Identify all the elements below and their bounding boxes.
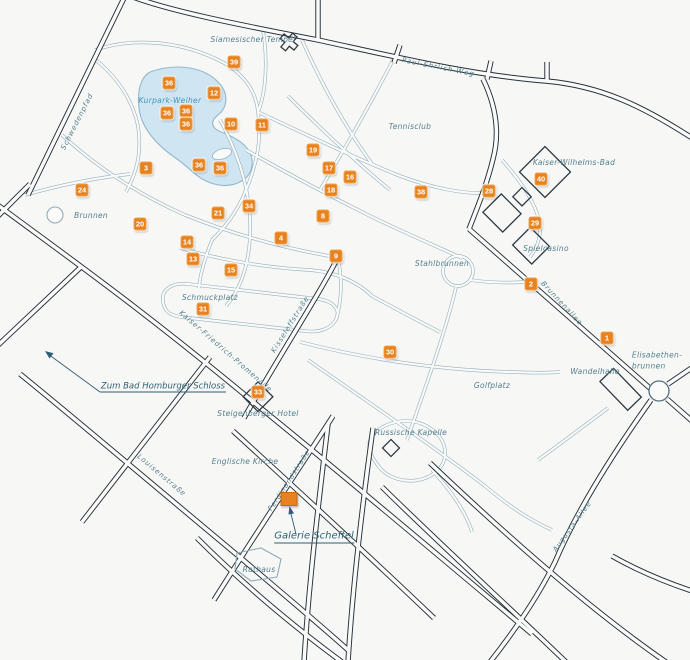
poi-marker-33[interactable]: 33	[252, 386, 265, 399]
poi-marker-24[interactable]: 24	[76, 184, 89, 197]
russische-kapelle-building	[383, 440, 400, 457]
poi-marker-13[interactable]: 13	[187, 253, 200, 266]
annotations	[45, 351, 296, 534]
poi-marker-36[interactable]: 36	[193, 159, 206, 172]
schloss-direction-arrow	[48, 354, 100, 392]
poi-marker-38[interactable]: 38	[415, 186, 428, 199]
map-canvas	[0, 0, 690, 660]
brunnen-fountain-icon	[47, 207, 63, 223]
poi-marker-36[interactable]: 36	[214, 162, 227, 175]
poi-marker-17[interactable]: 17	[323, 162, 336, 175]
poi-marker-16[interactable]: 16	[344, 171, 357, 184]
galerie-arrowhead-icon	[289, 506, 295, 515]
poi-marker-30[interactable]: 30	[384, 346, 397, 359]
poi-marker-15[interactable]: 15	[225, 264, 238, 277]
poi-marker-20[interactable]: 20	[134, 218, 147, 231]
poi-marker-4[interactable]: 4	[275, 232, 288, 245]
poi-marker-36[interactable]: 36	[180, 105, 193, 118]
elisabethenbrunnen-fountain-icon	[649, 381, 669, 401]
poi-marker-2[interactable]: 2	[525, 278, 538, 291]
spielcasino-building	[513, 227, 550, 264]
poi-marker-39[interactable]: 39	[228, 56, 241, 69]
poi-marker-1[interactable]: 1	[601, 332, 614, 345]
poi-marker-10[interactable]: 10	[225, 118, 238, 131]
poi-marker-9[interactable]: 9	[330, 250, 343, 263]
poi-marker-19[interactable]: 19	[307, 144, 320, 157]
poi-marker-3[interactable]: 3	[140, 162, 153, 175]
poi-marker-29[interactable]: 29	[529, 217, 542, 230]
poi-marker-18[interactable]: 18	[325, 184, 338, 197]
poi-marker-31[interactable]: 31	[197, 303, 210, 316]
kurpark-map: Siamesischer TempelPaul-Ehrlich-WegKurpa…	[0, 0, 690, 660]
galerie-scheffel-link[interactable]: Galerie Scheffel	[274, 531, 354, 544]
galerie-scheffel-location-marker[interactable]	[281, 492, 298, 506]
poi-marker-36[interactable]: 36	[180, 118, 193, 131]
poi-marker-11[interactable]: 11	[256, 119, 269, 132]
poi-marker-36[interactable]: 36	[161, 107, 174, 120]
poi-marker-21[interactable]: 21	[212, 207, 225, 220]
poi-marker-14[interactable]: 14	[181, 236, 194, 249]
poi-marker-34[interactable]: 34	[243, 200, 256, 213]
poi-marker-40[interactable]: 40	[535, 173, 548, 186]
poi-marker-12[interactable]: 12	[208, 87, 221, 100]
poi-marker-36[interactable]: 36	[163, 77, 176, 90]
zum-bad-homburger-schloss-link[interactable]: Zum Bad Homburger Schloss	[101, 382, 225, 393]
road-network	[0, 0, 690, 660]
poi-marker-28[interactable]: 28	[483, 185, 496, 198]
poi-marker-8[interactable]: 8	[317, 210, 330, 223]
